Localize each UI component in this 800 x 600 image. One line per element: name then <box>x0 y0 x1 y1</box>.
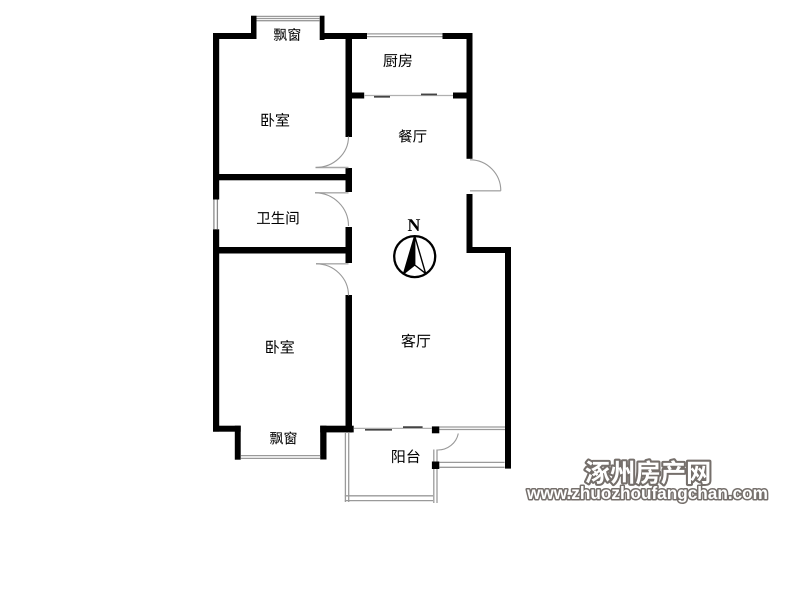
svg-text:www.zhuozhoufangchan.com: www.zhuozhoufangchan.com <box>526 483 768 503</box>
